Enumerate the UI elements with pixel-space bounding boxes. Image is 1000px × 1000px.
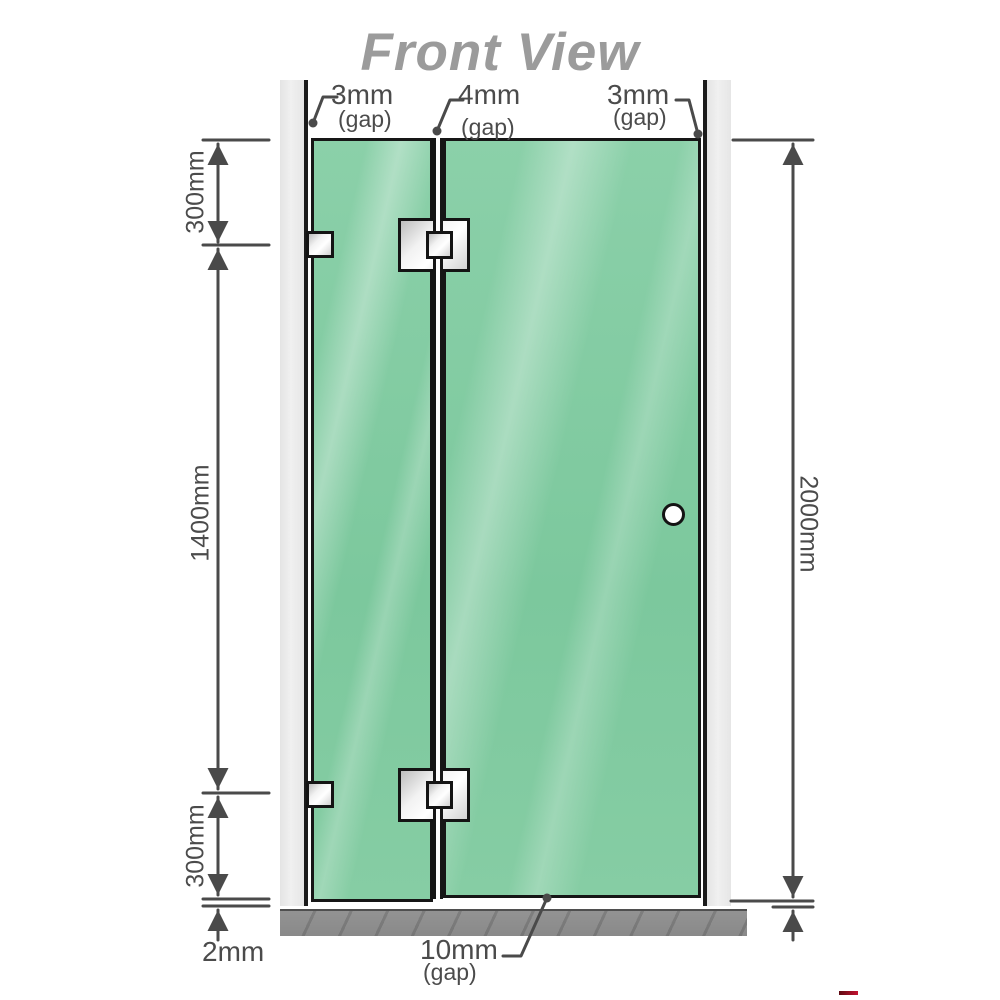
diagram-title: Front View: [0, 22, 1000, 83]
leader-dot-left: [309, 119, 318, 128]
hinge-knuckle-bottom: [426, 781, 453, 809]
gap-label-right-note: (gap): [613, 106, 667, 129]
dim-label-1400: 1400mm: [189, 464, 214, 561]
right-wall-post: [703, 80, 731, 906]
hinge-knuckle-top: [426, 231, 453, 259]
dim-label-300-bottom: 300mm: [184, 804, 209, 887]
gap-label-middle-note: (gap): [461, 116, 515, 139]
leader-dot-middle: [433, 127, 442, 136]
gap-label-middle-value: 4mm: [458, 81, 520, 109]
wall-bracket-top: [306, 231, 334, 258]
leader-gap-right: [676, 100, 698, 134]
floor-base: [280, 909, 747, 936]
dim-label-300-top: 300mm: [184, 150, 209, 233]
front-view-diagram: Front View: [0, 0, 1000, 1000]
gap-label-left-value: 3mm: [331, 81, 393, 109]
dim-label-2mm: 2mm: [202, 938, 264, 966]
gap-label-left-note: (gap): [338, 108, 392, 131]
left-wall-post: [280, 80, 308, 906]
watermark-red-fragment: [839, 991, 858, 995]
gap-label-bottom-note: (gap): [423, 961, 477, 984]
dim-label-2000: 2000mm: [796, 475, 821, 572]
door-handle-knob: [662, 503, 685, 526]
wall-bracket-bottom: [306, 781, 334, 808]
